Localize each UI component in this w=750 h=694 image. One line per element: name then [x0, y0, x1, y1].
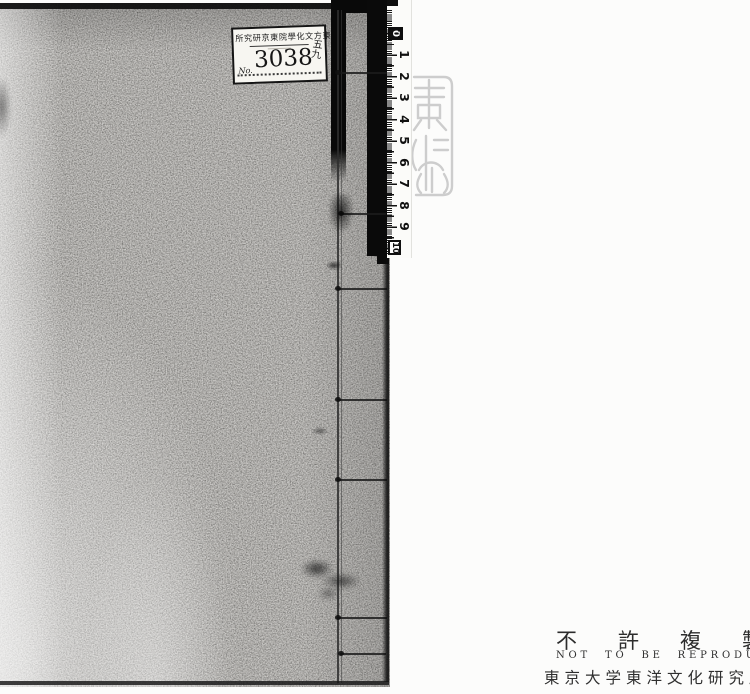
- institution-name: 東京大学東洋文化研究所: [544, 666, 750, 688]
- ruler-number-5: 5: [397, 134, 412, 148]
- ruler-number-4: 4: [397, 112, 412, 126]
- stitch-line: [337, 479, 387, 481]
- ruler-number-6: 6: [397, 155, 412, 169]
- stitch-knot: [335, 397, 341, 402]
- label-annotation-bottom: 九: [311, 50, 322, 61]
- ruler-unit-label: cm: [396, 29, 404, 40]
- ruler-number-8: 8: [397, 198, 412, 212]
- stitch-knot: [335, 615, 341, 620]
- ruler-number-3: 3: [397, 91, 412, 105]
- stitch-line: [337, 617, 387, 619]
- ruler-number-2: 2: [397, 69, 412, 83]
- label-annotation: 五 九: [311, 40, 324, 61]
- scanned-book-page: 所究研京東院學化文方東 No. 3038 五 九 01: [0, 0, 750, 694]
- ruler-number-1: 1: [397, 48, 412, 62]
- stitch-knot: [335, 477, 341, 482]
- library-seal-stamp: [406, 70, 458, 202]
- binding-thread-2: [341, 10, 342, 683]
- binding-thread: [337, 10, 339, 683]
- stitch-knot: [338, 211, 344, 216]
- copy-notice-english: NOT TO BE REPRODUCED: [556, 650, 750, 661]
- stitch-line: [340, 653, 386, 655]
- ruler-number-9: 9: [397, 220, 412, 234]
- right-backing-strip: [367, 0, 389, 256]
- stitch-line: [340, 213, 386, 215]
- stitch-line: [337, 288, 387, 290]
- stitch-knot: [335, 70, 341, 75]
- stitch-knot: [335, 286, 341, 291]
- fore-edge-shadow: [382, 258, 389, 682]
- ruler-cm-ticks: [387, 33, 397, 253]
- cover-top-edge: [0, 3, 348, 9]
- ruler-end-cap: [387, 0, 398, 6]
- accession-label: 所究研京東院學化文方東 No. 3038 五 九: [231, 24, 328, 84]
- stitch-line: [337, 72, 387, 74]
- accession-number: 3038: [254, 44, 314, 73]
- stitch-line: [337, 399, 387, 401]
- label-number-row: No. 3038 五 九: [234, 47, 326, 77]
- ruler-number-7: 7: [397, 177, 412, 191]
- cover-bottom-edge: [0, 681, 389, 685]
- stitch-knot: [338, 651, 344, 656]
- photo-scale-ruler: 012345678910 cm: [387, 0, 412, 258]
- label-institution: 所究研京東院學化文方東: [235, 29, 323, 44]
- ruler-number-10: 10: [388, 240, 401, 255]
